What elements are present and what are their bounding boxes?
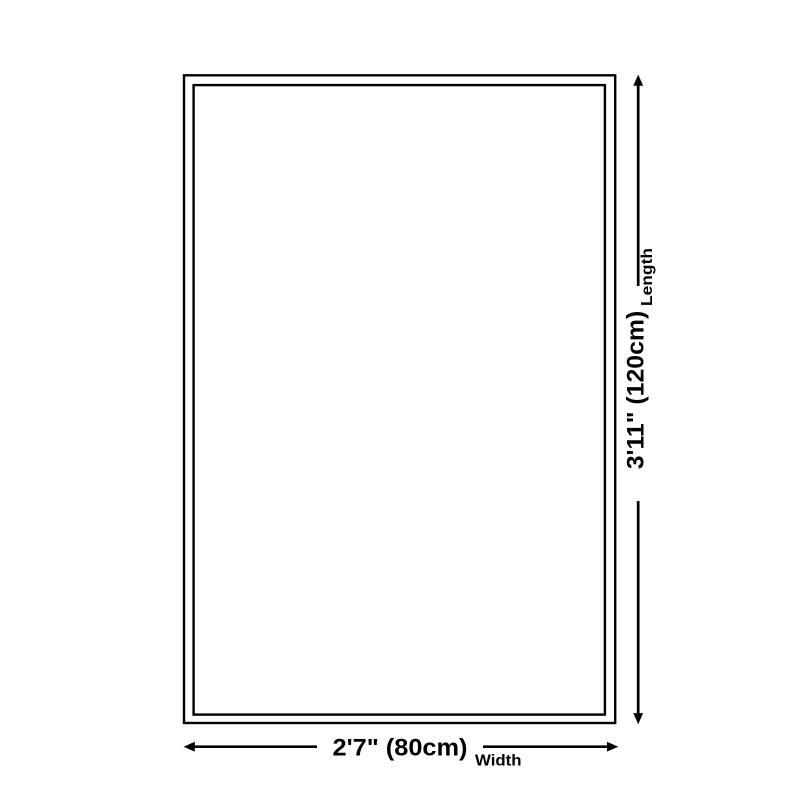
svg-text:3'11" (120cm): 3'11" (120cm) — [623, 311, 650, 470]
svg-text:Width: Width — [475, 753, 522, 770]
svg-text:Length: Length — [639, 248, 656, 306]
svg-text:2'7" (80cm): 2'7" (80cm) — [333, 734, 468, 761]
